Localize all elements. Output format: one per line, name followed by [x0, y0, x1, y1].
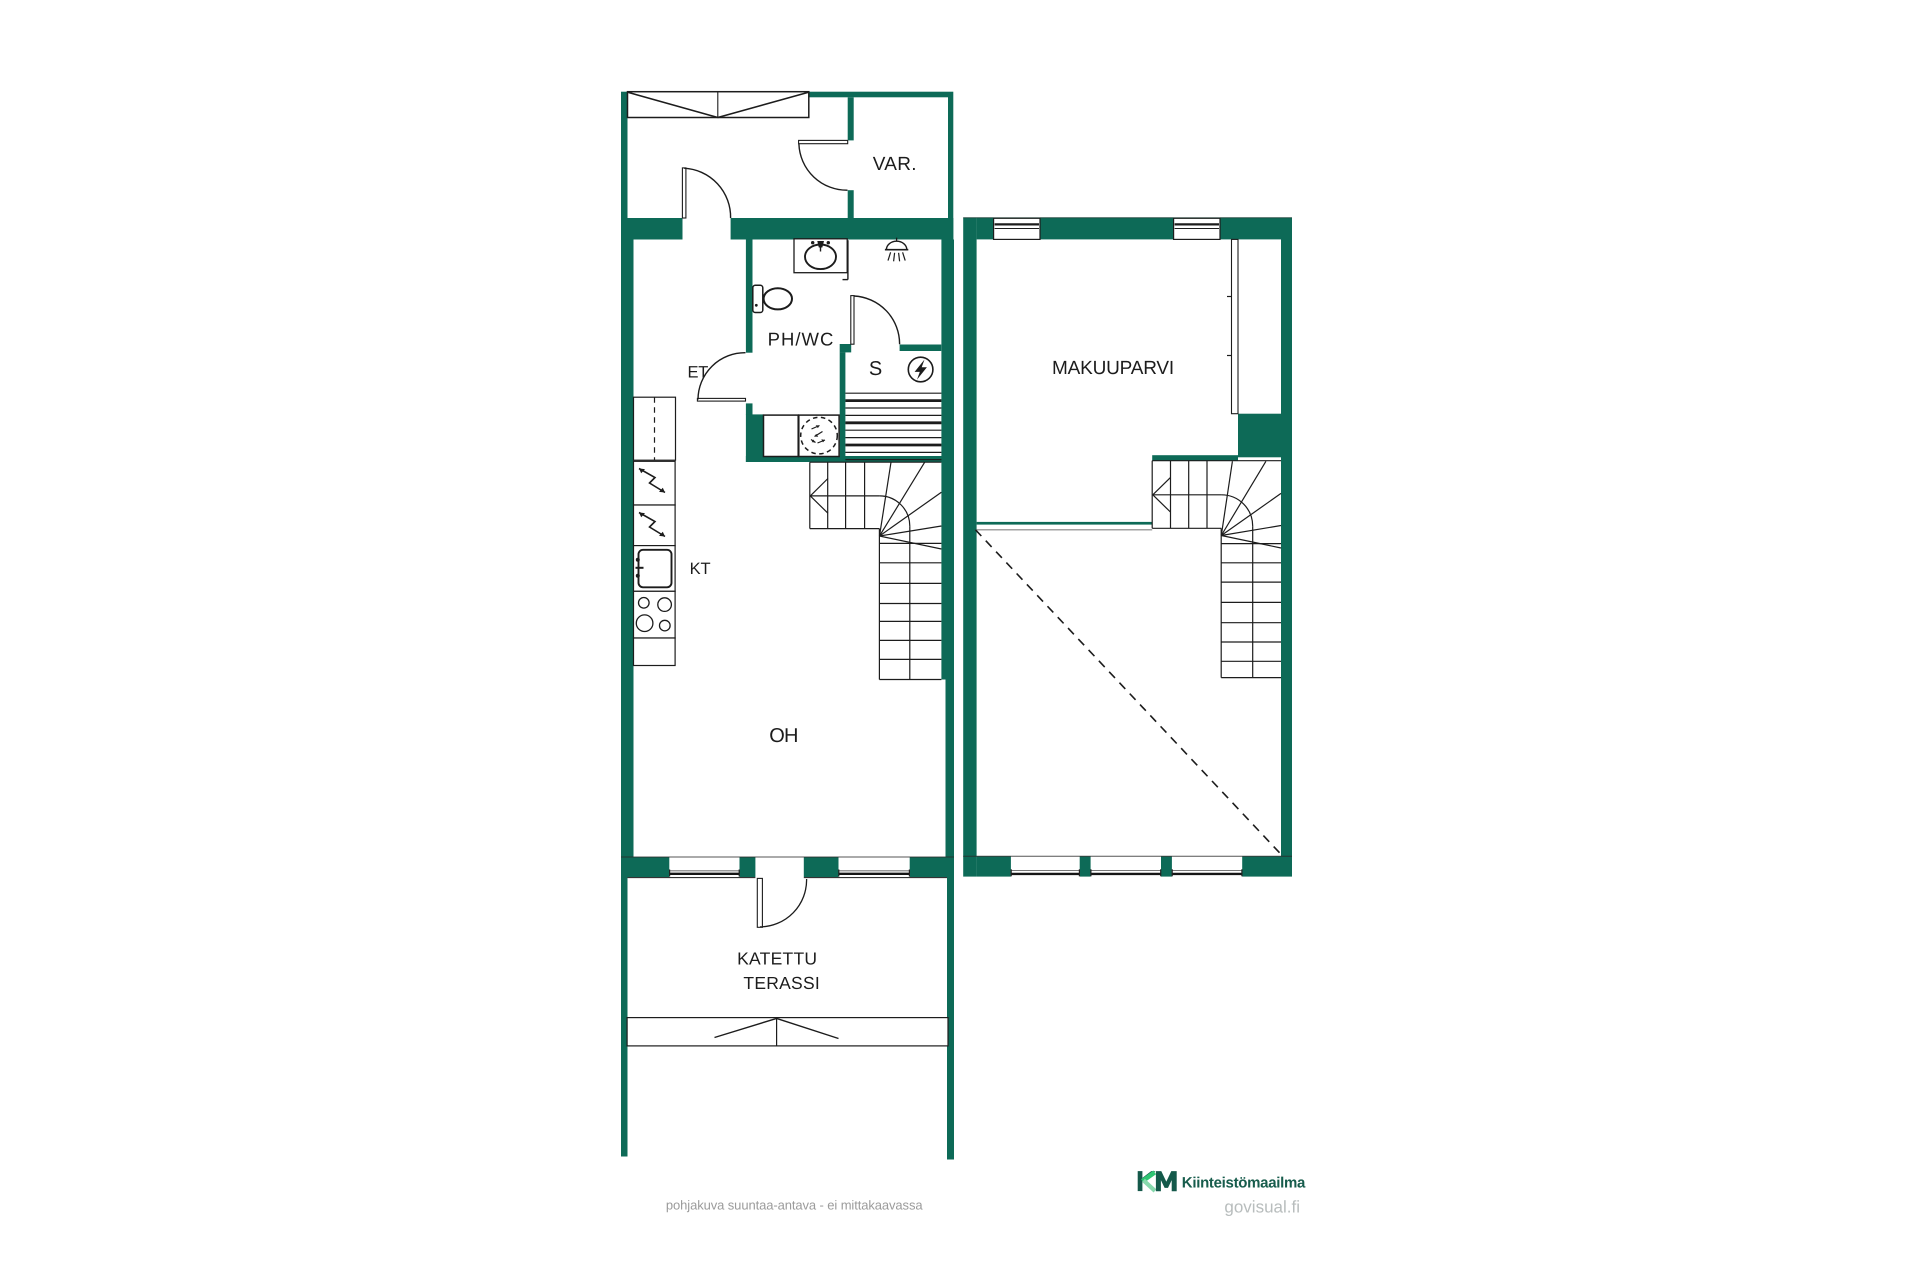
svg-text:OH: OH	[769, 725, 797, 747]
svg-text:Kiinteistömaailma: Kiinteistömaailma	[1182, 1174, 1306, 1191]
svg-text:VAR.: VAR.	[873, 154, 917, 175]
svg-text:TERASSI: TERASSI	[743, 973, 820, 993]
svg-text:PH/WC: PH/WC	[768, 328, 835, 349]
svg-text:pohjakuva suuntaa-antava - ei: pohjakuva suuntaa-antava - ei mittakaava…	[666, 1198, 923, 1213]
svg-text:KATETTU: KATETTU	[737, 949, 817, 969]
svg-text:MAKUUPARVI: MAKUUPARVI	[1052, 358, 1174, 379]
svg-text:S: S	[869, 358, 882, 380]
svg-text:govisual.fi: govisual.fi	[1224, 1198, 1300, 1217]
svg-text:KT: KT	[690, 560, 711, 578]
svg-text:ET: ET	[687, 363, 708, 381]
